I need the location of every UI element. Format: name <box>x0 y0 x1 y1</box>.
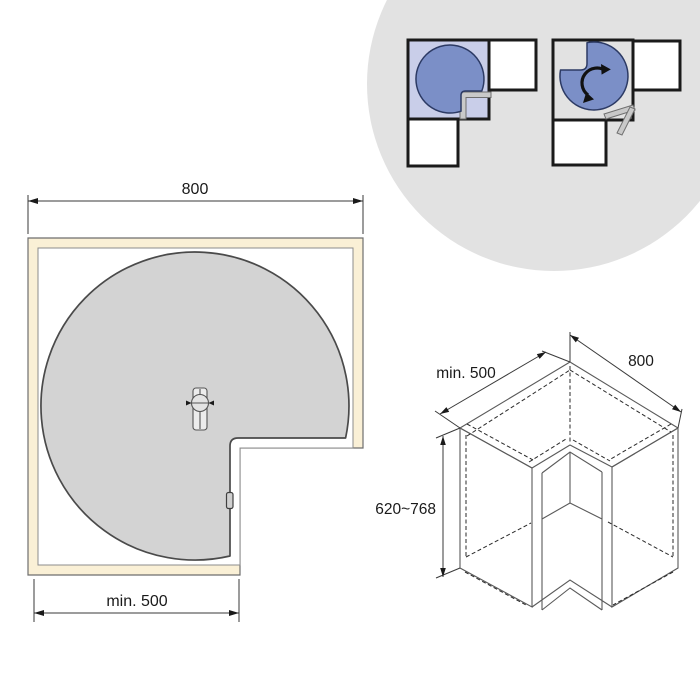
iso-right-face <box>612 428 678 607</box>
iso-front-opening <box>532 452 612 610</box>
dimension-diagram: 800 min. 500 <box>0 0 700 700</box>
iso-height-label: 620~768 <box>375 501 436 518</box>
plan-depth-dimension: min. 500 <box>34 579 239 622</box>
plan-depth-label: min. 500 <box>106 593 167 610</box>
cabinet-isometric-view: min. 500 800 620~768 <box>375 332 682 610</box>
adjacent-cabinet-right <box>489 40 536 90</box>
adjacent-cabinet-bottom <box>408 119 458 166</box>
plan-width-dimension: 800 <box>28 181 363 234</box>
iso-left-face <box>460 428 532 607</box>
usage-badge <box>367 0 700 271</box>
diagram-canvas: 800 min. 500 <box>0 0 700 700</box>
carousel-plan-view: 800 min. 500 <box>28 181 363 622</box>
iso-height-dimension: 620~768 <box>375 428 460 578</box>
iso-depth-dimension: min. 500 <box>435 351 570 428</box>
iso-width-label: 800 <box>628 353 654 370</box>
plan-width-label: 800 <box>182 181 209 198</box>
tray-stop-latch <box>227 493 234 509</box>
iso-hidden-lines <box>465 366 673 605</box>
adjacent-cabinet-right <box>633 41 680 90</box>
iso-depth-label: min. 500 <box>436 365 496 382</box>
adjacent-cabinet-bottom <box>553 120 606 165</box>
